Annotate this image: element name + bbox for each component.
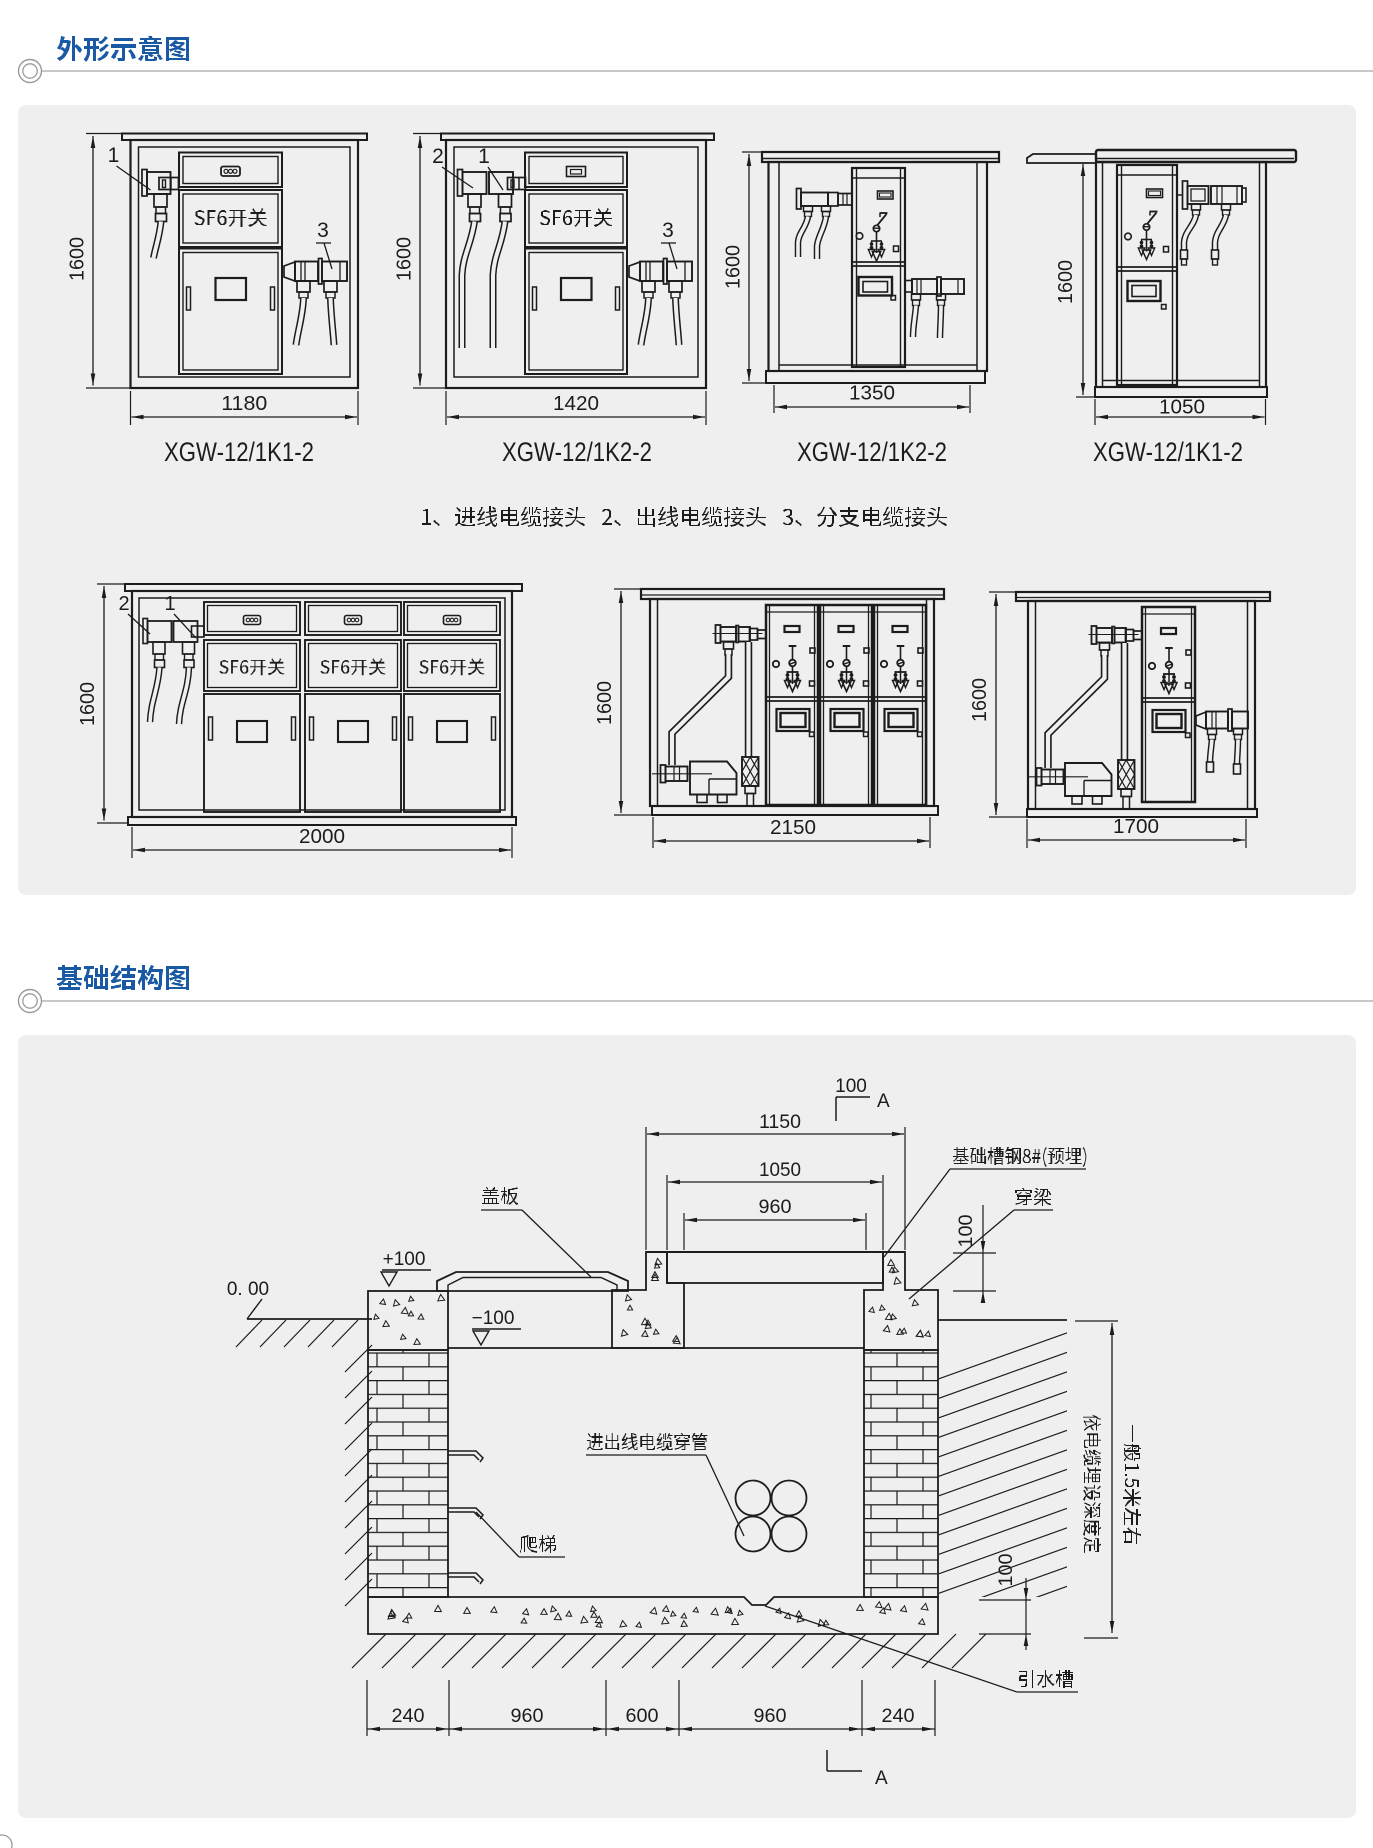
svg-text:960: 960 [511,1706,544,1727]
svg-text:1600: 1600 [394,237,416,281]
svg-text:3: 3 [317,219,329,242]
svg-text:600: 600 [626,1706,659,1727]
svg-text:960: 960 [759,1197,792,1218]
svg-text:+100: +100 [383,1249,426,1270]
svg-text:XGW-12/1K2-2: XGW-12/1K2-2 [797,437,947,467]
svg-text:1: 1 [164,593,175,615]
svg-text:1050: 1050 [1159,397,1205,419]
svg-text:2: 2 [432,145,444,168]
svg-text:960: 960 [754,1706,787,1727]
svg-text:1420: 1420 [553,393,599,415]
svg-text:A: A [877,1091,890,1112]
svg-text:100: 100 [835,1076,867,1097]
svg-text:−100: −100 [472,1308,515,1329]
svg-text:1600: 1600 [67,237,89,281]
svg-text:2000: 2000 [299,826,345,848]
svg-text:XGW-12/1K2-2: XGW-12/1K2-2 [502,437,652,467]
svg-text:1600: 1600 [969,678,991,722]
svg-text:240: 240 [392,1706,425,1727]
svg-text:1600: 1600 [723,245,745,289]
svg-text:XGW-12/1K1-2: XGW-12/1K1-2 [164,437,314,467]
svg-text:1150: 1150 [759,1112,801,1133]
svg-text:1350: 1350 [849,383,895,405]
svg-text:100: 100 [996,1554,1017,1587]
svg-text:100: 100 [956,1215,977,1248]
svg-text:1600: 1600 [77,682,99,726]
svg-text:XGW-12/1K1-2: XGW-12/1K1-2 [1093,437,1243,467]
svg-text:1600: 1600 [594,681,616,725]
svg-text:0. 00: 0. 00 [227,1279,269,1300]
svg-text:A: A [875,1768,888,1789]
svg-text:240: 240 [882,1706,915,1727]
svg-text:2: 2 [118,593,129,615]
svg-text:1180: 1180 [221,393,267,415]
svg-text:1: 1 [108,144,120,167]
svg-text:1050: 1050 [759,1160,801,1181]
svg-text:1: 1 [478,145,490,168]
svg-text:1700: 1700 [1113,816,1159,838]
svg-text:2150: 2150 [770,817,816,839]
svg-text:3: 3 [662,219,674,242]
svg-text:1600: 1600 [1055,260,1077,304]
